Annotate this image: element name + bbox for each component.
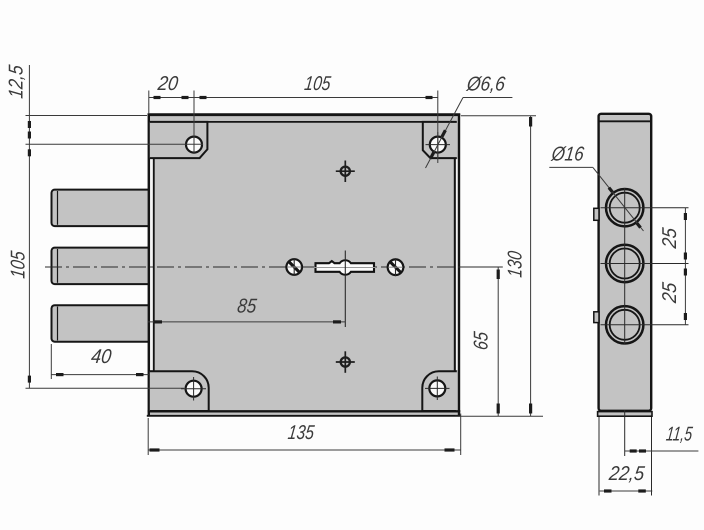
svg-text:135: 135 xyxy=(287,422,316,444)
svg-text:25: 25 xyxy=(659,281,681,305)
svg-text:85: 85 xyxy=(236,296,258,318)
svg-text:65: 65 xyxy=(471,330,493,351)
svg-text:20: 20 xyxy=(156,73,180,95)
svg-text:11,5: 11,5 xyxy=(665,424,694,446)
svg-text:25: 25 xyxy=(659,226,681,250)
svg-text:Ø16: Ø16 xyxy=(550,144,586,166)
svg-text:22,5: 22,5 xyxy=(607,463,646,485)
svg-text:40: 40 xyxy=(90,346,113,368)
svg-text:12,5: 12,5 xyxy=(6,63,28,99)
svg-text:Ø6,6: Ø6,6 xyxy=(465,74,507,96)
svg-text:105: 105 xyxy=(303,73,332,95)
svg-text:105: 105 xyxy=(8,249,30,279)
svg-text:130: 130 xyxy=(505,250,527,279)
